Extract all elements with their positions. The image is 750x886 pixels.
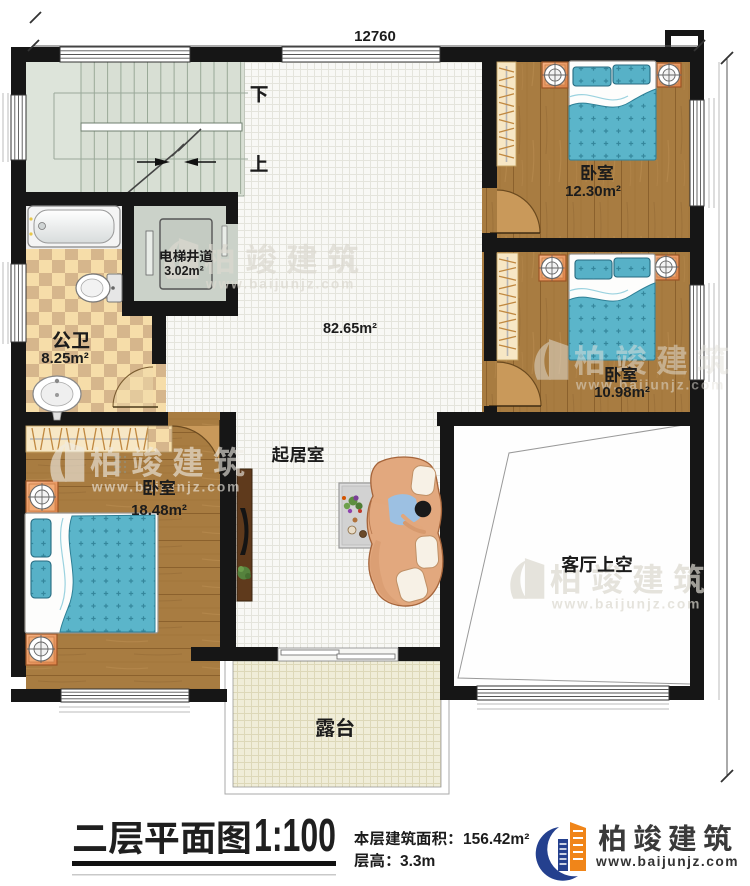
svg-text:156.42m²: 156.42m²	[463, 831, 529, 848]
svg-text:本层建筑面积：: 本层建筑面积：	[354, 827, 463, 849]
svg-text:www.baijunjz.com: www.baijunjz.com	[205, 277, 355, 292]
svg-text:卧室: 卧室	[142, 474, 176, 499]
svg-text:www.baijunjz.com: www.baijunjz.com	[595, 854, 739, 869]
svg-text:露台: 露台	[315, 712, 355, 741]
svg-text:1:100: 1:100	[254, 809, 336, 861]
svg-text:柏竣建筑: 柏竣建筑	[598, 816, 738, 858]
svg-text:二层平面图: 二层平面图	[72, 810, 252, 862]
svg-text:电梯井道: 电梯井道	[159, 245, 213, 265]
svg-text:12.30m²: 12.30m²	[565, 183, 621, 200]
svg-text:起居室: 起居室	[272, 442, 325, 467]
svg-text:上: 上	[249, 150, 268, 177]
svg-text:卧室: 卧室	[604, 361, 638, 386]
svg-text:www.baijunjz.com: www.baijunjz.com	[551, 597, 701, 612]
svg-text:3.02m²: 3.02m²	[164, 264, 204, 278]
svg-text:柏竣建筑: 柏竣建筑	[574, 336, 738, 382]
svg-text:12760: 12760	[354, 28, 396, 45]
svg-text:18.48m²: 18.48m²	[131, 502, 187, 519]
svg-text:卧室: 卧室	[580, 159, 614, 184]
svg-text:10.98m²: 10.98m²	[594, 384, 650, 401]
svg-text:层高：: 层高：	[354, 849, 401, 871]
svg-text:下: 下	[249, 80, 268, 107]
svg-text:客厅上空: 客厅上空	[561, 551, 633, 577]
svg-text:8.25m²: 8.25m²	[41, 350, 89, 367]
svg-text:3.3m: 3.3m	[400, 853, 435, 870]
svg-text:82.65m²: 82.65m²	[323, 321, 377, 337]
svg-text:公卫: 公卫	[52, 326, 90, 353]
svg-text:柏竣建筑: 柏竣建筑	[204, 235, 368, 281]
